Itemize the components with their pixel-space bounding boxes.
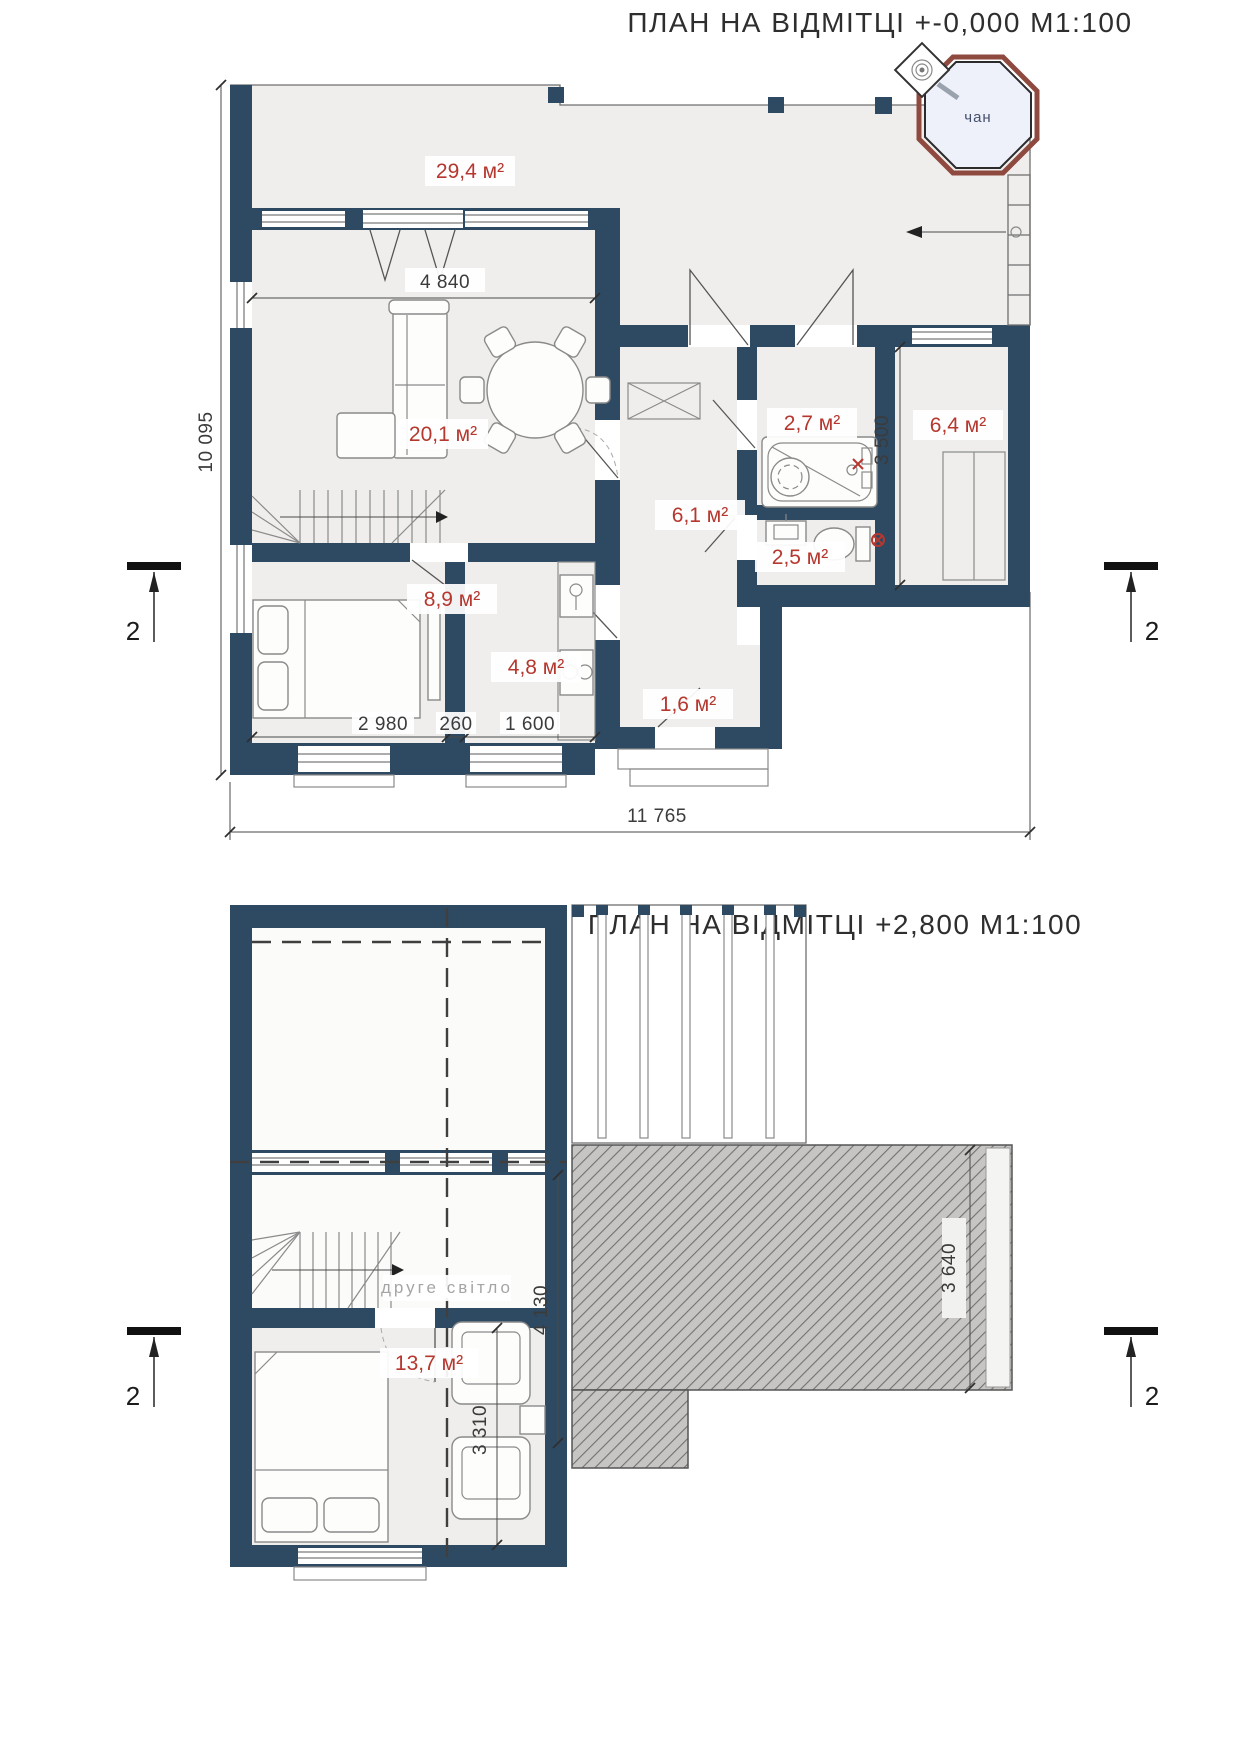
plan1-title: ПЛАН НА ВІДМІТЦІ +-0,000 М1:100 — [627, 7, 1132, 38]
dim-4840: 4 840 — [420, 272, 470, 293]
floor-plan-canvas: ПЛАН НА ВІДМІТЦІ +-0,000 М1:100 — [0, 0, 1241, 1754]
section-marker-left-plan1: 2 — [126, 562, 181, 646]
bedroom-mirror — [428, 600, 440, 700]
lower-roof — [572, 1390, 688, 1468]
area-label-living: 20,1 м² — [409, 423, 477, 446]
area-label-terrace: 29,4 м² — [436, 160, 504, 183]
area-label-wc: 2,5 м² — [772, 546, 828, 569]
section-marker-right-plan1: 2 — [1104, 562, 1159, 646]
dim-10095: 10 095 — [196, 411, 217, 472]
side-table — [520, 1406, 545, 1434]
area-label-vestibule: 1,6 м² — [660, 693, 716, 716]
dim-2980: 2 980 — [358, 714, 408, 735]
area-label-bedroom2: 13,7 м² — [395, 1352, 463, 1375]
dim-3500: 3 500 — [872, 415, 893, 465]
bed-2 — [255, 1352, 388, 1542]
armchair — [452, 1437, 530, 1519]
area-label-entry: 6,4 м² — [930, 414, 986, 437]
drawing-sheet: ПЛАН НА ВІДМІТЦІ +-0,000 М1:100 — [0, 0, 1241, 1754]
roof-terrace-edge — [986, 1148, 1010, 1387]
hall-floor — [620, 347, 737, 645]
dim-3640: 3 640 — [939, 1243, 960, 1293]
plan2: ПЛАН НА ВІДМІТЦІ +2,800 М1:100 — [126, 905, 1159, 1580]
section-marker-left-plan2: 2 — [126, 1327, 181, 1411]
dim-1600: 1 600 — [505, 714, 555, 735]
bed — [253, 600, 420, 718]
hot-tub-label: чан — [964, 109, 991, 126]
terrace-post — [768, 97, 784, 113]
dim-3310: 3 310 — [470, 1405, 491, 1455]
section-marker-right-plan2: 2 — [1104, 1327, 1159, 1411]
area-label-bath: 2,7 м² — [784, 412, 840, 435]
section-number: 2 — [126, 1381, 140, 1411]
dim-4130: 4 130 — [531, 1285, 552, 1335]
tub-stove-icon — [895, 43, 958, 98]
section-number: 2 — [1145, 616, 1159, 646]
washing-machine — [771, 458, 809, 496]
area-label-hall: 6,1 м² — [672, 504, 728, 527]
plan2-title: ПЛАН НА ВІДМІТЦІ +2,800 М1:100 — [588, 909, 1082, 940]
area-label-bedroom: 8,9 м² — [424, 588, 480, 611]
dim-260: 260 — [439, 714, 472, 735]
entry-floor — [895, 347, 1008, 585]
section-number: 2 — [126, 616, 140, 646]
dim-11765: 11 765 — [627, 806, 687, 827]
terrace-post — [875, 97, 892, 114]
pergola — [572, 905, 806, 1143]
section-number: 2 — [1145, 1381, 1159, 1411]
area-label-kitchen: 4,8 м² — [508, 656, 564, 679]
plan1: ПЛАН НА ВІДМІТЦІ +-0,000 М1:100 — [126, 7, 1159, 840]
terrace-post — [548, 87, 564, 103]
void-label: друге світло — [381, 1278, 513, 1297]
